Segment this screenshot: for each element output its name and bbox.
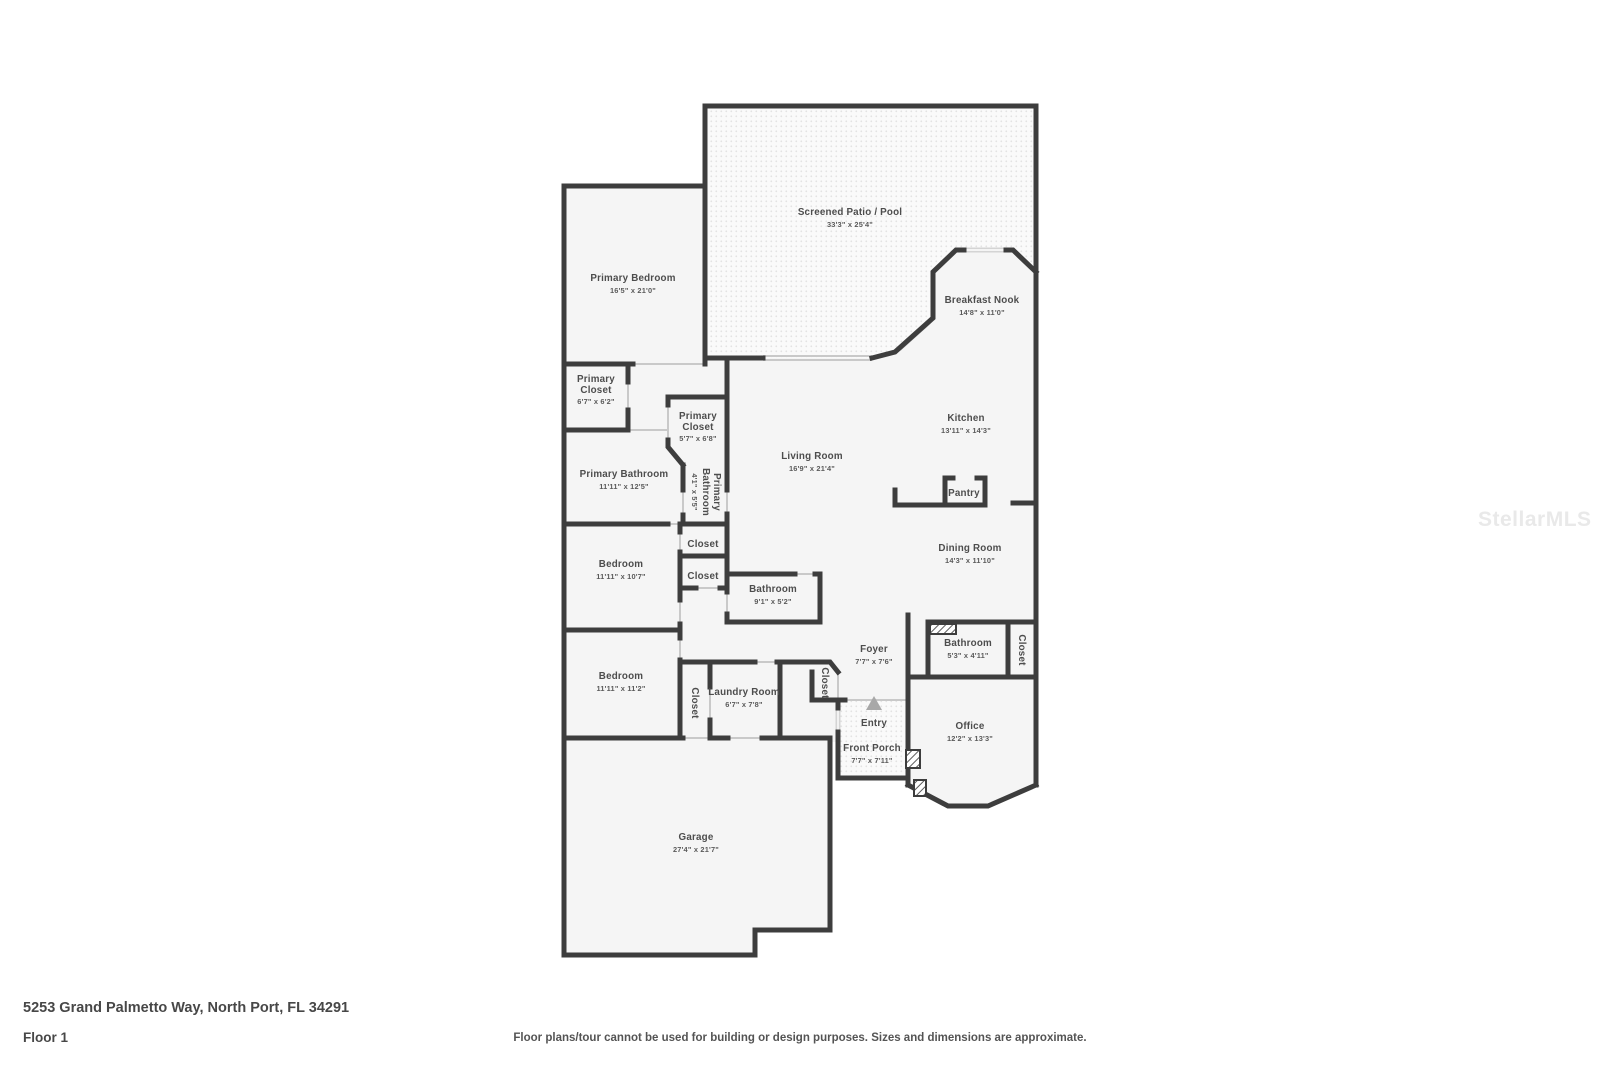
room-label-bedroom-b: Bedroom	[599, 671, 643, 682]
svg-text:4'1" x 5'5": 4'1" x 5'5"	[690, 473, 699, 511]
stellar-mls-watermark: StellarMLS	[1478, 508, 1592, 532]
room-label-front-porch: Front Porch	[843, 743, 901, 754]
room-dims-living-room: 16'9" x 21'4"	[789, 464, 835, 473]
room-dims-primary-closet-a: 6'7" x 6'2"	[577, 397, 615, 406]
room-dims-primary-bedroom: 16'5" x 21'0"	[610, 286, 656, 295]
room-dims-foyer: 7'7" x 7'6"	[855, 657, 893, 666]
room-dims-laundry: 6'7" x 7'8"	[725, 700, 763, 709]
room-label-closet-hall-b: Closet	[687, 571, 719, 582]
room-label-primary-bathroom: Primary Bathroom	[580, 469, 669, 480]
room-label-bedroom-a: Bedroom	[599, 559, 643, 570]
room-label-primary-closet-b-1: Primary	[679, 411, 717, 422]
room-dims-primary-closet-b: 5'7" x 6'8"	[679, 434, 717, 443]
room-dims-bedroom-b: 11'11" x 11'2"	[596, 684, 645, 693]
room-label-closet-foyer: Closet	[819, 667, 830, 699]
porch-floor-fill	[838, 700, 908, 778]
room-label-closet-office: Closet	[1016, 634, 1027, 666]
room-label-garage: Garage	[679, 832, 714, 843]
room-label-laundry: Laundry Room	[708, 687, 780, 698]
room-label-primary-closet-a-1: Primary	[577, 374, 615, 385]
room-label-closet-hall-a: Closet	[687, 539, 719, 550]
room-label-foyer: Foyer	[860, 644, 888, 655]
room-label-primary-closet-b-2: Closet	[682, 422, 714, 433]
svg-text:Bathroom: Bathroom	[700, 468, 711, 516]
svg-text:Closet: Closet	[689, 687, 700, 719]
room-dims-garage: 27'4" x 21'7"	[673, 845, 719, 854]
room-label-primary-bedroom: Primary Bedroom	[590, 273, 675, 284]
room-label-bathroom-hall: Bathroom	[749, 584, 797, 595]
room-label-breakfast-nook: Breakfast Nook	[945, 295, 1020, 306]
room-dims-dining-room: 14'3" x 11'10"	[945, 556, 995, 565]
room-dims-breakfast-nook: 14'8" x 11'0"	[959, 308, 1005, 317]
property-address: 5253 Grand Palmetto Way, North Port, FL …	[23, 1000, 349, 1016]
disclaimer-text: Floor plans/tour cannot be used for buil…	[0, 1032, 1600, 1044]
room-label-closet-bedroom-b: Closet	[689, 687, 700, 719]
room-label-primary-closet-a-2: Closet	[580, 385, 612, 396]
room-label-entry: Entry	[861, 718, 887, 729]
svg-text:Primary: Primary	[711, 473, 722, 511]
bay-column	[914, 780, 926, 796]
svg-text:Closet: Closet	[1016, 634, 1027, 666]
room-label-office: Office	[956, 721, 985, 732]
room-dims-screened-patio: 33'3" x 25'4"	[827, 220, 873, 229]
shower-fixture	[930, 624, 956, 634]
room-label-dining-room: Dining Room	[938, 543, 1001, 554]
room-dims-bedroom-a: 11'11" x 10'7"	[596, 572, 646, 581]
room-label-bathroom-office: Bathroom	[944, 638, 992, 649]
floor-plan: Screened Patio / Pool 33'3" x 25'4" Prim…	[0, 0, 1600, 1066]
room-label-screened-patio: Screened Patio / Pool	[798, 207, 902, 218]
room-label-primary-bathroom-small: Primary Bathroom 4'1" x 5'5"	[690, 468, 722, 516]
floor-plan-page: Screened Patio / Pool 33'3" x 25'4" Prim…	[0, 0, 1600, 1066]
room-label-kitchen: Kitchen	[947, 413, 984, 424]
porch-column	[906, 750, 920, 768]
room-dims-office: 12'2" x 13'3"	[947, 734, 993, 743]
room-label-living-room: Living Room	[781, 451, 843, 462]
room-dims-bathroom-office: 5'3" x 4'11"	[947, 651, 989, 660]
svg-text:Closet: Closet	[819, 667, 830, 699]
room-dims-front-porch: 7'7" x 7'11"	[851, 756, 893, 765]
room-label-pantry: Pantry	[948, 488, 980, 499]
room-dims-kitchen: 13'11" x 14'3"	[941, 426, 991, 435]
room-dims-bathroom-hall: 9'1" x 5'2"	[754, 597, 792, 606]
room-dims-primary-bathroom: 11'11" x 12'5"	[599, 482, 649, 491]
